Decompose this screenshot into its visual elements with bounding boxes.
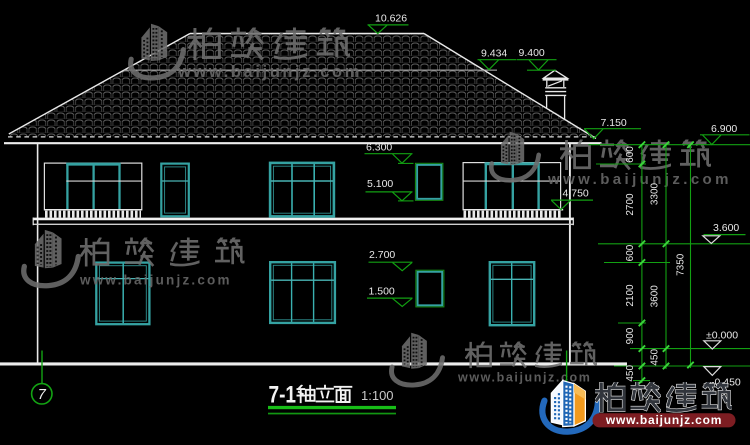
svg-text:2.700: 2.700 (369, 249, 395, 261)
svg-text:3600: 3600 (649, 285, 660, 308)
svg-text:3.600: 3.600 (713, 222, 739, 234)
svg-text:2100: 2100 (625, 284, 636, 307)
svg-text:10.626: 10.626 (375, 13, 407, 25)
svg-text:3300: 3300 (649, 182, 660, 205)
svg-text:7.150: 7.150 (601, 117, 627, 129)
svg-text:450: 450 (625, 365, 636, 382)
svg-text:450: 450 (649, 349, 660, 366)
svg-text:7: 7 (38, 387, 47, 403)
svg-text:5.100: 5.100 (367, 178, 393, 190)
svg-text:www.baijunjz.com: www.baijunjz.com (605, 413, 722, 427)
svg-text:www.baijunjz.com: www.baijunjz.com (177, 63, 362, 81)
svg-text:900: 900 (625, 327, 636, 344)
svg-text:±0.000: ±0.000 (706, 330, 738, 342)
svg-text:4.750: 4.750 (563, 188, 589, 200)
svg-text:www.baijunjz.com: www.baijunjz.com (79, 273, 232, 288)
svg-text:6.300: 6.300 (366, 142, 392, 154)
svg-text:1:100: 1:100 (361, 388, 394, 403)
svg-text:7350: 7350 (675, 253, 686, 276)
svg-text:2700: 2700 (625, 193, 636, 216)
svg-text:600: 600 (625, 146, 636, 163)
svg-text:www.baijunjz.com: www.baijunjz.com (547, 171, 732, 188)
svg-text:1.500: 1.500 (369, 286, 395, 298)
svg-text:7-1: 7-1 (269, 382, 297, 409)
svg-text:6.900: 6.900 (711, 123, 737, 135)
svg-text:9.400: 9.400 (519, 47, 545, 59)
svg-text:9.434: 9.434 (481, 48, 507, 60)
svg-text:600: 600 (625, 244, 636, 261)
